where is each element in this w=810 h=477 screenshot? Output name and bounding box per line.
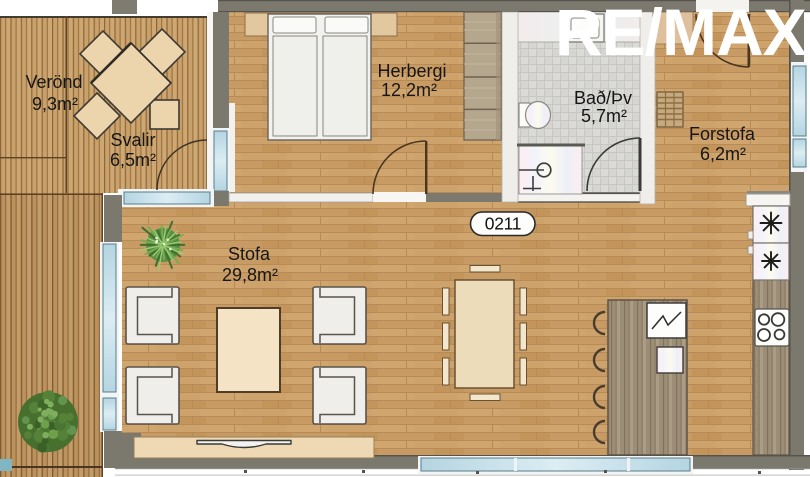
svg-text:29,8m²: 29,8m²	[222, 265, 278, 285]
svg-text:0211: 0211	[485, 214, 521, 234]
svg-text:Stofa: Stofa	[228, 244, 271, 264]
svg-text:RE/MAX: RE/MAX	[555, 0, 807, 69]
svg-text:Herbergi: Herbergi	[377, 61, 446, 81]
svg-text:Forstofa: Forstofa	[689, 124, 756, 144]
svg-text:6,5m²: 6,5m²	[110, 150, 156, 170]
svg-text:Svalir: Svalir	[110, 130, 155, 150]
svg-text:6,2m²: 6,2m²	[700, 144, 746, 164]
svg-text:Verönd: Verönd	[25, 72, 82, 92]
svg-text:12,2m²: 12,2m²	[381, 80, 437, 100]
svg-text:5,7m²: 5,7m²	[581, 106, 627, 126]
svg-text:Bað/Þv: Bað/Þv	[574, 88, 632, 108]
svg-text:9,3m²: 9,3m²	[32, 94, 78, 114]
